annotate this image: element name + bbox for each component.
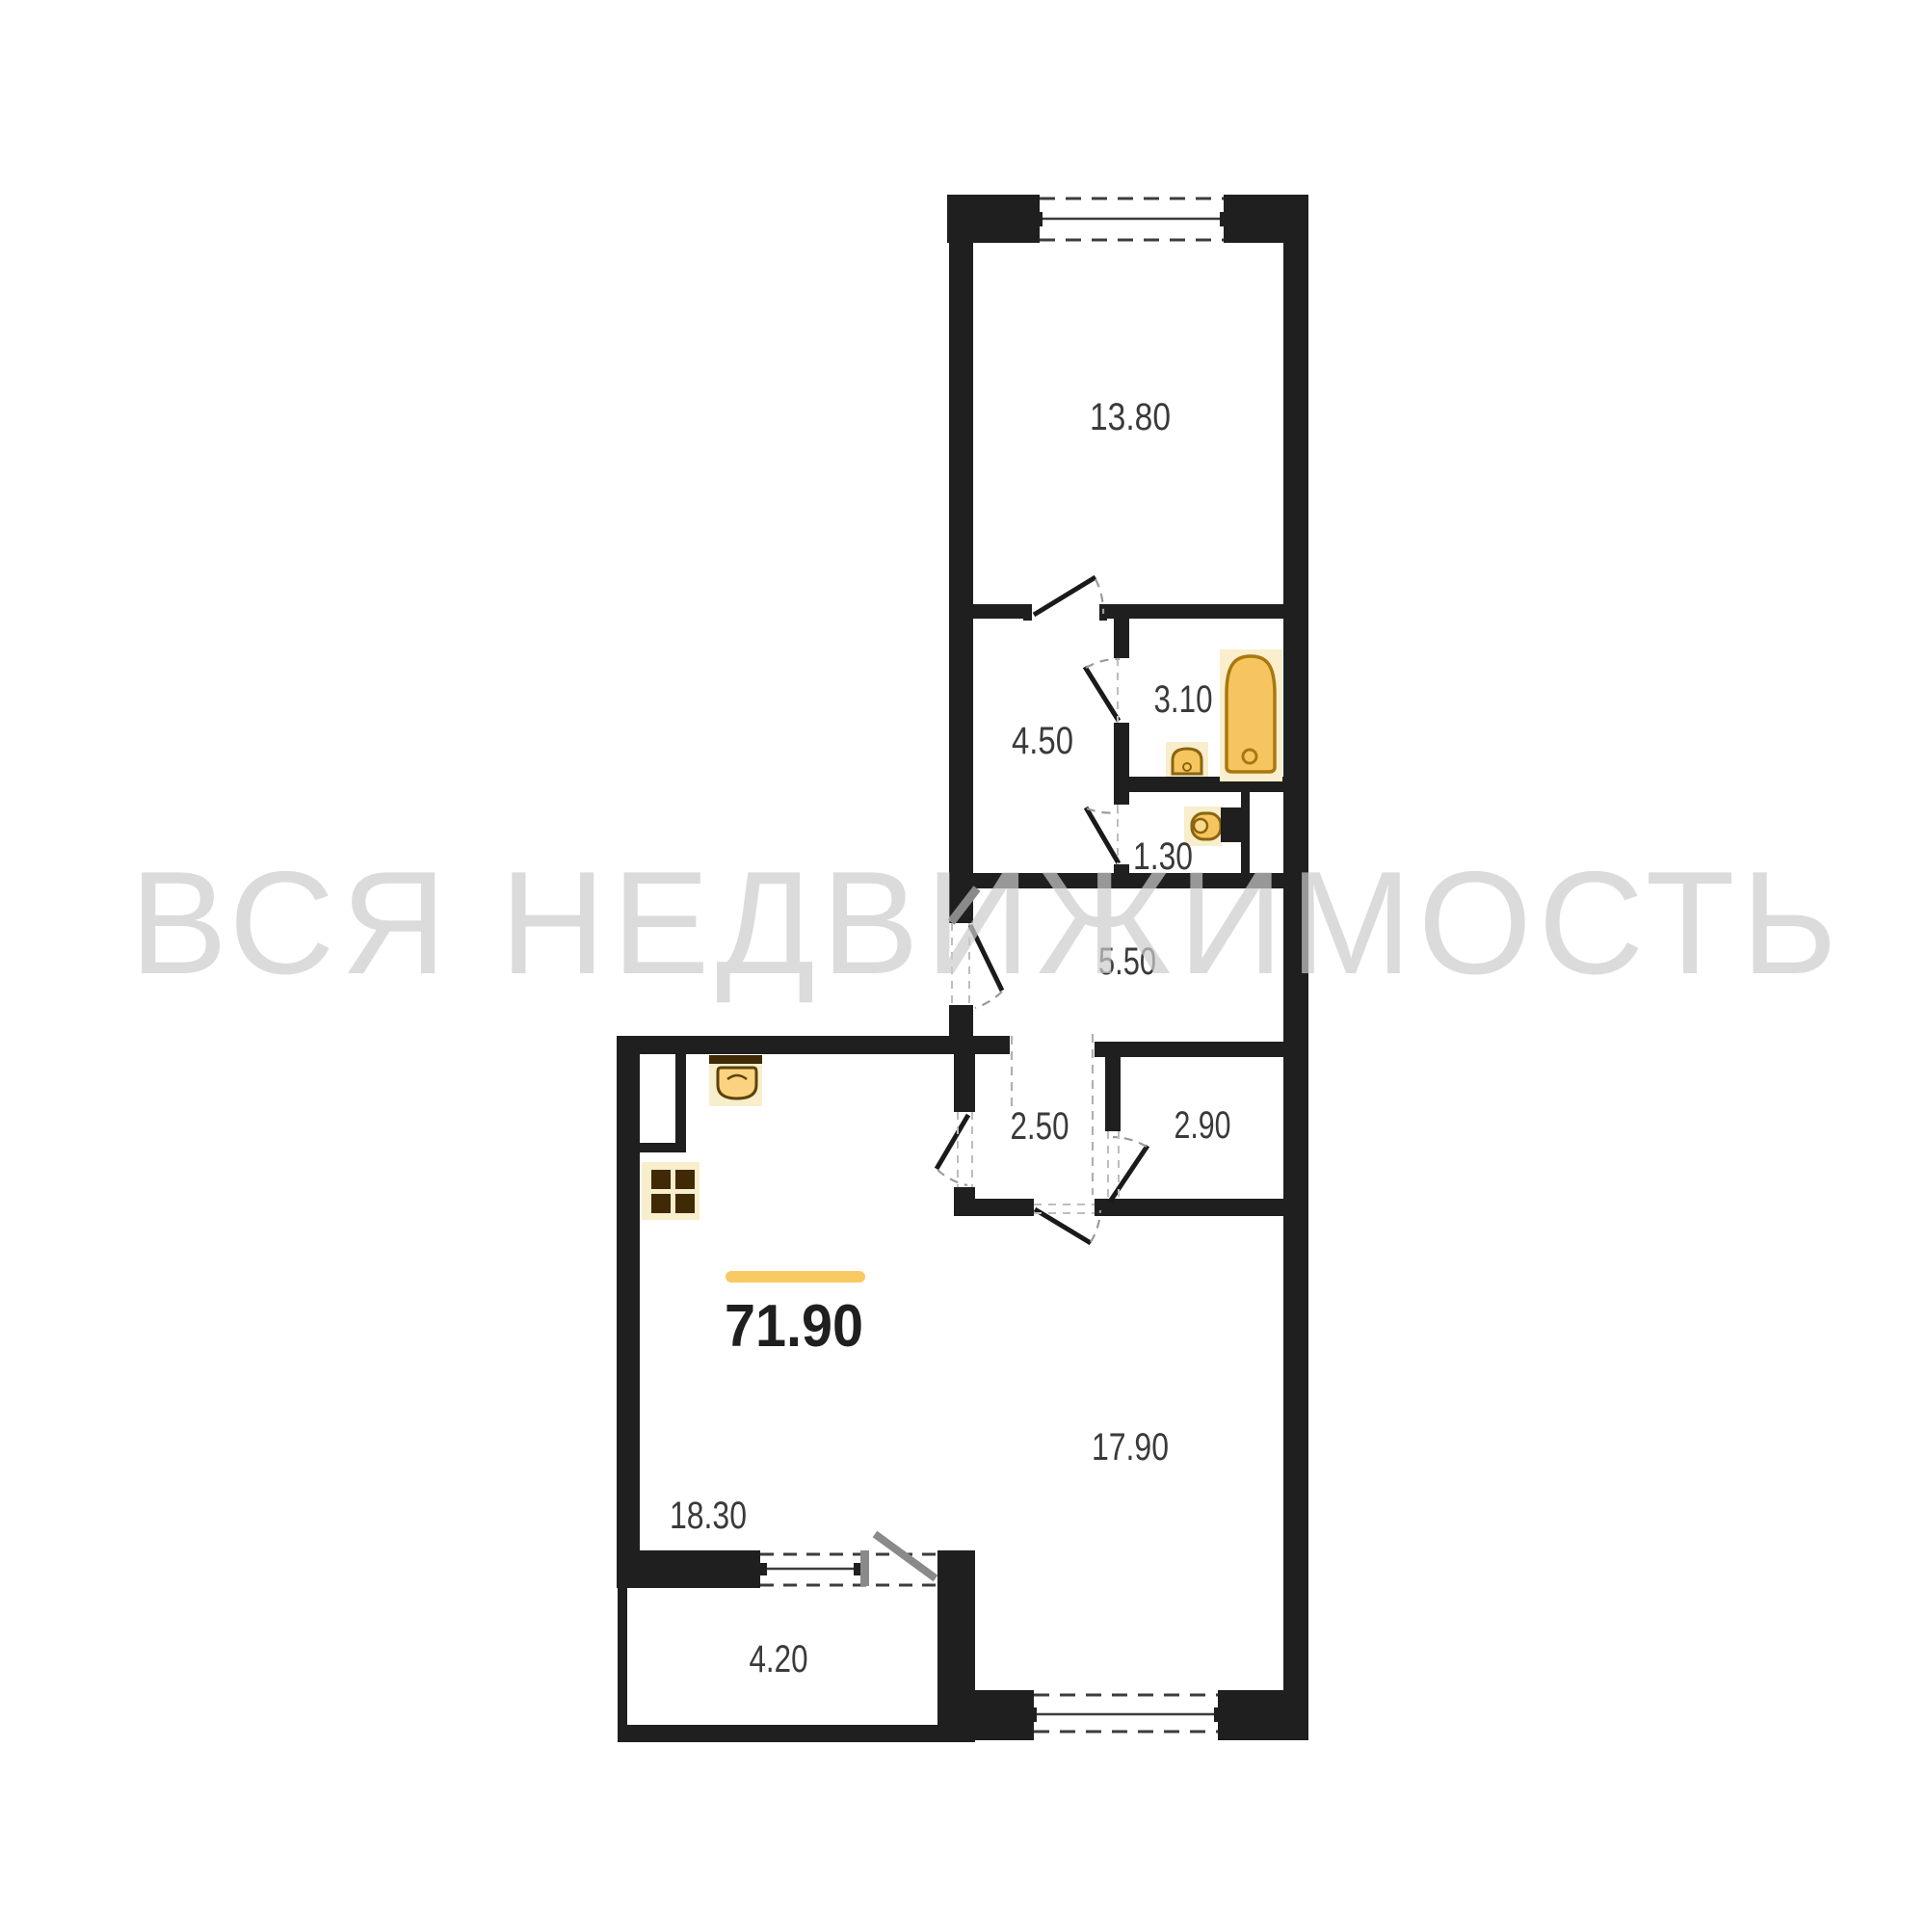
- svg-text:ВСЯ НЕДВИЖИМОСТЬ: ВСЯ НЕДВИЖИМОСТЬ: [130, 841, 1844, 1005]
- svg-text:4.20: 4.20: [750, 1638, 808, 1681]
- svg-text:4.50: 4.50: [1012, 720, 1073, 762]
- svg-text:3.10: 3.10: [1154, 678, 1213, 721]
- svg-text:71.90: 71.90: [725, 1293, 863, 1360]
- svg-text:2.50: 2.50: [1011, 1105, 1069, 1148]
- svg-text:18.30: 18.30: [670, 1495, 747, 1537]
- svg-text:13.80: 13.80: [1090, 396, 1171, 438]
- svg-text:17.90: 17.90: [1092, 1426, 1169, 1469]
- svg-text:2.90: 2.90: [1175, 1104, 1231, 1147]
